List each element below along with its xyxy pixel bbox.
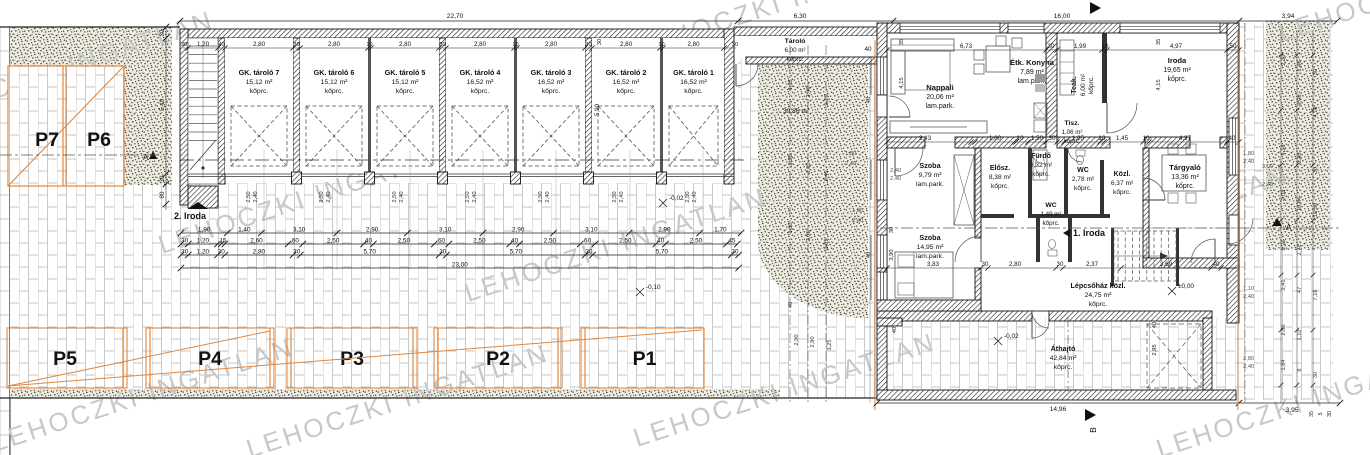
- svg-text:30: 30: [439, 42, 445, 48]
- svg-text:39,86 m²: 39,86 m²: [783, 108, 810, 115]
- svg-text:2,40: 2,40: [399, 191, 405, 202]
- svg-text:2,40: 2,40: [1243, 294, 1254, 300]
- svg-text:A: A: [1286, 223, 1292, 232]
- svg-text:4,97: 4,97: [1170, 43, 1183, 50]
- svg-text:3,80: 3,80: [1297, 153, 1303, 164]
- svg-text:2,71: 2,71: [1297, 245, 1303, 256]
- svg-text:lam.park.: lam.park.: [926, 103, 955, 110]
- svg-text:2,50: 2,50: [465, 191, 471, 202]
- svg-text:1,45: 1,45: [1116, 135, 1129, 142]
- svg-text:15: 15: [219, 238, 227, 245]
- svg-text:2,60: 2,60: [250, 238, 263, 245]
- svg-text:30: 30: [597, 39, 603, 45]
- svg-text:14,96: 14,96: [1050, 406, 1067, 413]
- svg-text:B: B: [1088, 427, 1098, 433]
- svg-text:2,95: 2,95: [1152, 344, 1158, 355]
- svg-text:6,37 m²: 6,37 m²: [1111, 180, 1134, 187]
- svg-text:40: 40: [218, 42, 224, 48]
- svg-text:8,38 m²: 8,38 m²: [989, 174, 1012, 181]
- svg-text:A: A: [143, 153, 149, 162]
- svg-text:1,20: 1,20: [197, 238, 210, 245]
- svg-text:3,94: 3,94: [1282, 13, 1295, 20]
- svg-text:8: 8: [1297, 368, 1303, 371]
- svg-text:3,10: 3,10: [585, 227, 598, 234]
- svg-text:P7: P7: [35, 129, 59, 151]
- svg-text:40: 40: [1213, 261, 1220, 268]
- svg-text:WC: WC: [1045, 202, 1056, 209]
- svg-text:1,10: 1,10: [1297, 330, 1303, 341]
- svg-text:30: 30: [293, 42, 299, 48]
- svg-text:2,40: 2,40: [824, 170, 830, 181]
- svg-text:3,69: 3,69: [1160, 261, 1173, 268]
- svg-text:2,80: 2,80: [253, 41, 266, 48]
- svg-text:2,40: 2,40: [326, 191, 332, 202]
- svg-text:3,10: 3,10: [439, 227, 452, 234]
- svg-text:40: 40: [511, 238, 519, 245]
- svg-text:50: 50: [1230, 43, 1237, 50]
- svg-text:P6: P6: [87, 129, 111, 151]
- svg-text:9,79 m²: 9,79 m²: [918, 172, 942, 179]
- svg-text:2,80: 2,80: [253, 249, 266, 256]
- svg-text:GK. tároló 1: GK. tároló 1: [673, 68, 714, 77]
- svg-text:1,10: 1,10: [1243, 286, 1254, 292]
- svg-text:5,40: 5,40: [159, 98, 166, 111]
- svg-text:WC: WC: [1077, 167, 1089, 174]
- svg-text:2,78 m²: 2,78 m²: [1072, 176, 1095, 183]
- svg-text:10: 10: [1143, 135, 1150, 142]
- svg-text:2,50: 2,50: [246, 191, 252, 202]
- svg-text:3,43: 3,43: [919, 135, 932, 142]
- svg-text:16,00: 16,00: [1054, 13, 1071, 20]
- svg-text:2,40: 2,40: [890, 168, 901, 174]
- svg-text:1,20: 1,20: [197, 249, 210, 256]
- svg-text:2,90: 2,90: [794, 334, 800, 345]
- svg-text:10: 10: [366, 42, 372, 48]
- svg-text:30: 30: [293, 249, 301, 256]
- svg-text:2,40: 2,40: [692, 191, 698, 202]
- svg-text:5,70: 5,70: [510, 249, 523, 256]
- svg-text:4,16: 4,16: [1281, 145, 1287, 156]
- svg-text:1,70: 1,70: [714, 227, 727, 234]
- svg-text:2,50: 2,50: [327, 238, 340, 245]
- svg-text:kőprc.: kőprc.: [325, 88, 344, 95]
- svg-text:5,90: 5,90: [594, 103, 601, 116]
- svg-text:-0,02: -0,02: [669, 195, 684, 202]
- svg-text:Elősz.: Elősz.: [990, 165, 1010, 172]
- svg-text:80: 80: [159, 191, 166, 198]
- svg-text:10: 10: [658, 42, 664, 48]
- svg-text:2,50: 2,50: [544, 238, 557, 245]
- svg-text:40: 40: [657, 238, 665, 245]
- svg-text:±0,00: ±0,00: [1178, 283, 1194, 290]
- svg-text:6,00 m²: 6,00 m²: [785, 47, 806, 54]
- svg-text:30: 30: [1313, 69, 1319, 75]
- svg-text:42,84 m²: 42,84 m²: [1050, 355, 1078, 362]
- svg-text:2,50: 2,50: [690, 238, 703, 245]
- svg-text:GK. tároló 6: GK. tároló 6: [314, 68, 355, 77]
- svg-text:2,40: 2,40: [472, 191, 478, 202]
- svg-text:GK. tároló 7: GK. tároló 7: [239, 68, 280, 77]
- svg-text:P1: P1: [633, 348, 657, 370]
- svg-text:2,37: 2,37: [1086, 261, 1099, 268]
- svg-text:1,60: 1,60: [989, 135, 1002, 142]
- svg-text:4,37: 4,37: [1179, 135, 1192, 142]
- svg-text:2,80: 2,80: [1009, 261, 1022, 268]
- svg-text:6,00 m²: 6,00 m²: [1080, 73, 1087, 96]
- svg-text:2,90: 2,90: [810, 336, 816, 347]
- svg-text:2,80: 2,80: [328, 41, 341, 48]
- svg-text:30: 30: [439, 249, 447, 256]
- svg-text:60: 60: [438, 238, 446, 245]
- svg-text:Étk. Konyha: Étk. Konyha: [1010, 58, 1055, 67]
- svg-text:kőprc.: kőprc.: [1054, 364, 1073, 371]
- svg-text:3,05: 3,05: [824, 238, 830, 249]
- svg-text:kőprc.: kőprc.: [617, 88, 636, 95]
- svg-text:1,30: 1,30: [788, 222, 794, 233]
- svg-text:47: 47: [1297, 287, 1303, 293]
- svg-text:lam.park.: lam.park.: [916, 181, 944, 188]
- svg-text:2,40: 2,40: [253, 191, 259, 202]
- svg-text:4,15: 4,15: [1156, 79, 1162, 90]
- svg-text:2. Iroda: 2. Iroda: [174, 211, 207, 221]
- svg-text:3,10: 3,10: [293, 227, 306, 234]
- svg-text:1,80: 1,80: [1243, 151, 1254, 157]
- svg-text:10,64: 10,64: [1297, 197, 1303, 211]
- svg-text:10: 10: [1017, 135, 1024, 142]
- svg-text:Közl.: Közl.: [1114, 171, 1131, 178]
- svg-text:Szoba: Szoba: [919, 161, 941, 170]
- svg-text:16,52 m²: 16,52 m²: [467, 79, 495, 86]
- svg-text:30: 30: [181, 42, 187, 48]
- svg-text:2,41: 2,41: [1281, 280, 1287, 291]
- svg-text:35: 35: [899, 39, 905, 45]
- svg-text:2,40: 2,40: [845, 161, 856, 167]
- svg-text:6,30: 6,30: [794, 13, 807, 20]
- svg-text:2,50: 2,50: [398, 238, 411, 245]
- svg-text:30: 30: [181, 249, 189, 256]
- svg-text:2,80: 2,80: [1243, 356, 1254, 362]
- svg-text:2,40: 2,40: [619, 191, 625, 202]
- svg-text:2,80: 2,80: [545, 41, 558, 48]
- svg-text:1,20: 1,20: [197, 41, 210, 48]
- svg-text:kőprc.: kőprc.: [1088, 76, 1095, 94]
- svg-text:Tároló: Tároló: [785, 38, 806, 45]
- svg-text:2,80: 2,80: [687, 41, 700, 48]
- svg-text:30: 30: [731, 249, 739, 256]
- svg-text:35: 35: [1309, 411, 1315, 417]
- svg-text:16,52 m²: 16,52 m²: [538, 79, 566, 86]
- svg-text:P2: P2: [486, 348, 510, 370]
- svg-text:10: 10: [512, 42, 518, 48]
- svg-text:3,83: 3,83: [927, 261, 940, 268]
- svg-text:2,50: 2,50: [685, 191, 691, 202]
- svg-text:GK. tároló 2: GK. tároló 2: [606, 68, 647, 77]
- svg-text:20,06 m²: 20,06 m²: [926, 94, 954, 101]
- svg-text:Iroda: Iroda: [1168, 56, 1187, 65]
- svg-text:2,40: 2,40: [1243, 364, 1254, 370]
- svg-text:2,80: 2,80: [1281, 325, 1287, 336]
- svg-text:Teak.: Teak.: [1071, 76, 1078, 93]
- svg-text:-0,10: -0,10: [646, 284, 661, 291]
- svg-text:1,49 m²: 1,49 m²: [1041, 211, 1062, 218]
- svg-text:Áthajtó: Áthajtó: [1051, 344, 1076, 353]
- svg-text:2,50: 2,50: [612, 191, 618, 202]
- svg-text:40: 40: [1152, 322, 1158, 328]
- svg-text:GK. tároló 4: GK. tároló 4: [460, 68, 501, 77]
- svg-text:3,26: 3,26: [1281, 240, 1287, 251]
- svg-text:kőprc.: kőprc.: [1167, 76, 1186, 83]
- svg-text:1,36: 1,36: [1297, 61, 1303, 72]
- svg-text:2,40: 2,40: [852, 218, 863, 224]
- svg-text:GK. tároló 5: GK. tároló 5: [385, 68, 426, 77]
- svg-text:30: 30: [1313, 372, 1319, 378]
- svg-text:45: 45: [728, 238, 736, 245]
- svg-text:35: 35: [1156, 39, 1162, 45]
- svg-text:2,50: 2,50: [538, 191, 544, 202]
- svg-text:1,84: 1,84: [1281, 360, 1287, 371]
- svg-text:40: 40: [365, 238, 373, 245]
- svg-text:15,12 m²: 15,12 m²: [392, 79, 420, 86]
- svg-text:19,65 m²: 19,65 m²: [1163, 67, 1191, 74]
- svg-text:2,40: 2,40: [890, 176, 901, 182]
- svg-text:kőprc.: kőprc.: [471, 88, 490, 95]
- svg-text:kőprc.: kőprc.: [684, 88, 703, 95]
- svg-text:2,08: 2,08: [1281, 190, 1287, 201]
- svg-text:30: 30: [218, 249, 226, 256]
- svg-text:22,70: 22,70: [447, 13, 464, 20]
- svg-text:2,80: 2,80: [474, 41, 487, 48]
- svg-text:1,50: 1,50: [1031, 135, 1044, 142]
- svg-text:2,50: 2,50: [619, 238, 632, 245]
- svg-text:15,12 m²: 15,12 m²: [321, 79, 349, 86]
- svg-text:16,52 m²: 16,52 m²: [680, 79, 708, 86]
- svg-text:Nappali: Nappali: [926, 83, 953, 92]
- svg-text:13,36 m²: 13,36 m²: [1171, 174, 1199, 181]
- svg-text:kőprc.: kőprc.: [991, 183, 1009, 190]
- svg-text:30: 30: [159, 29, 166, 36]
- svg-text:2,80: 2,80: [620, 41, 633, 48]
- svg-text:-0,02: -0,02: [1004, 333, 1019, 340]
- svg-text:kőprc.: kőprc.: [787, 56, 804, 63]
- svg-text:3,90: 3,90: [889, 249, 895, 260]
- svg-text:lam.park.: lam.park.: [916, 253, 944, 260]
- svg-text:kőprc.: kőprc.: [396, 88, 415, 95]
- svg-text:30: 30: [181, 238, 189, 245]
- svg-text:2,50: 2,50: [319, 191, 325, 202]
- svg-text:kőprc.: kőprc.: [542, 88, 561, 95]
- svg-text:30: 30: [1057, 261, 1064, 268]
- svg-text:GK. tároló 3: GK. tároló 3: [531, 68, 572, 77]
- svg-text:7,16: 7,16: [1313, 290, 1319, 301]
- svg-text:1,80: 1,80: [806, 162, 812, 173]
- svg-text:4,15: 4,15: [899, 77, 905, 88]
- svg-text:4,75: 4,75: [788, 79, 794, 90]
- svg-text:3,00: 3,00: [1297, 95, 1303, 106]
- svg-text:Tisz.: Tisz.: [1065, 120, 1080, 127]
- svg-text:14,95 m²: 14,95 m²: [917, 244, 945, 251]
- svg-text:60: 60: [292, 238, 300, 245]
- svg-text:5,70: 5,70: [656, 249, 669, 256]
- svg-text:1,80: 1,80: [852, 208, 863, 214]
- svg-text:30: 30: [889, 227, 895, 233]
- svg-text:40: 40: [864, 46, 872, 53]
- svg-text:2,40: 2,40: [806, 86, 812, 97]
- svg-text:2,90: 2,90: [366, 227, 379, 234]
- svg-text:2,40: 2,40: [545, 191, 551, 202]
- svg-text:kőprc.: kőprc.: [1089, 301, 1108, 308]
- svg-text:2,30: 2,30: [1281, 55, 1287, 66]
- svg-text:24,75 m²: 24,75 m²: [1085, 292, 1113, 299]
- svg-text:2,50: 2,50: [473, 238, 486, 245]
- svg-text:30: 30: [1327, 411, 1333, 417]
- svg-text:1,99: 1,99: [1074, 43, 1087, 50]
- svg-text:15,58: 15,58: [1313, 203, 1319, 217]
- svg-text:2,90: 2,90: [512, 227, 525, 234]
- svg-text:40: 40: [1229, 135, 1236, 142]
- svg-text:P5: P5: [53, 348, 77, 370]
- svg-text:5,70: 5,70: [363, 249, 376, 256]
- svg-text:40: 40: [788, 302, 794, 308]
- svg-text:3,95: 3,95: [1286, 407, 1299, 414]
- svg-text:kőprc.: kőprc.: [1113, 189, 1131, 196]
- svg-text:10: 10: [1099, 135, 1106, 142]
- svg-text:P4: P4: [198, 348, 222, 370]
- svg-text:30: 30: [1049, 135, 1056, 142]
- svg-text:2,90: 2,90: [658, 227, 671, 234]
- svg-text:Tárgyaló: Tárgyaló: [1169, 163, 1201, 172]
- svg-text:kőprc.: kőprc.: [1175, 183, 1194, 190]
- svg-text:3,25: 3,25: [827, 339, 833, 350]
- svg-text:kőprc.: kőprc.: [1074, 185, 1092, 192]
- svg-text:30: 30: [585, 42, 591, 48]
- svg-text:23,00: 23,00: [452, 262, 468, 269]
- svg-text:Lépcsőház közl.: Lépcsőház közl.: [1070, 281, 1125, 290]
- svg-text:2,50: 2,50: [392, 191, 398, 202]
- svg-text:kőprc.: kőprc.: [1043, 220, 1060, 227]
- svg-text:1,90: 1,90: [198, 227, 211, 234]
- svg-text:4,15: 4,15: [1313, 107, 1319, 118]
- svg-text:3,10: 3,10: [788, 154, 794, 165]
- svg-text:1,05: 1,05: [1072, 135, 1085, 142]
- svg-text:5: 5: [1318, 413, 1324, 416]
- svg-text:kőprc.: kőprc.: [250, 88, 269, 95]
- svg-text:1. Iroda: 1. Iroda: [1073, 228, 1106, 238]
- svg-text:30: 30: [732, 42, 738, 48]
- svg-text:1,80: 1,80: [845, 151, 856, 157]
- svg-text:2,40: 2,40: [1262, 182, 1273, 188]
- svg-text:30: 30: [1048, 43, 1055, 50]
- svg-text:2,40: 2,40: [1243, 159, 1254, 165]
- svg-text:30: 30: [585, 249, 593, 256]
- svg-text:60: 60: [584, 238, 592, 245]
- svg-text:10: 10: [1102, 43, 1109, 50]
- svg-text:40: 40: [892, 327, 898, 333]
- svg-text:30: 30: [982, 261, 989, 268]
- svg-text:3,00: 3,00: [1262, 164, 1273, 170]
- svg-text:40: 40: [866, 97, 872, 103]
- svg-text:30: 30: [159, 175, 166, 182]
- svg-text:Szoba: Szoba: [919, 233, 941, 242]
- svg-text:1,20: 1,20: [824, 94, 830, 105]
- svg-text:2,80: 2,80: [399, 41, 412, 48]
- svg-text:6,73: 6,73: [960, 43, 973, 50]
- svg-text:15,12 m²: 15,12 m²: [246, 79, 274, 86]
- svg-text:1,40: 1,40: [238, 227, 251, 234]
- svg-text:2,05: 2,05: [806, 230, 812, 241]
- svg-text:16,52 m²: 16,52 m²: [613, 79, 641, 86]
